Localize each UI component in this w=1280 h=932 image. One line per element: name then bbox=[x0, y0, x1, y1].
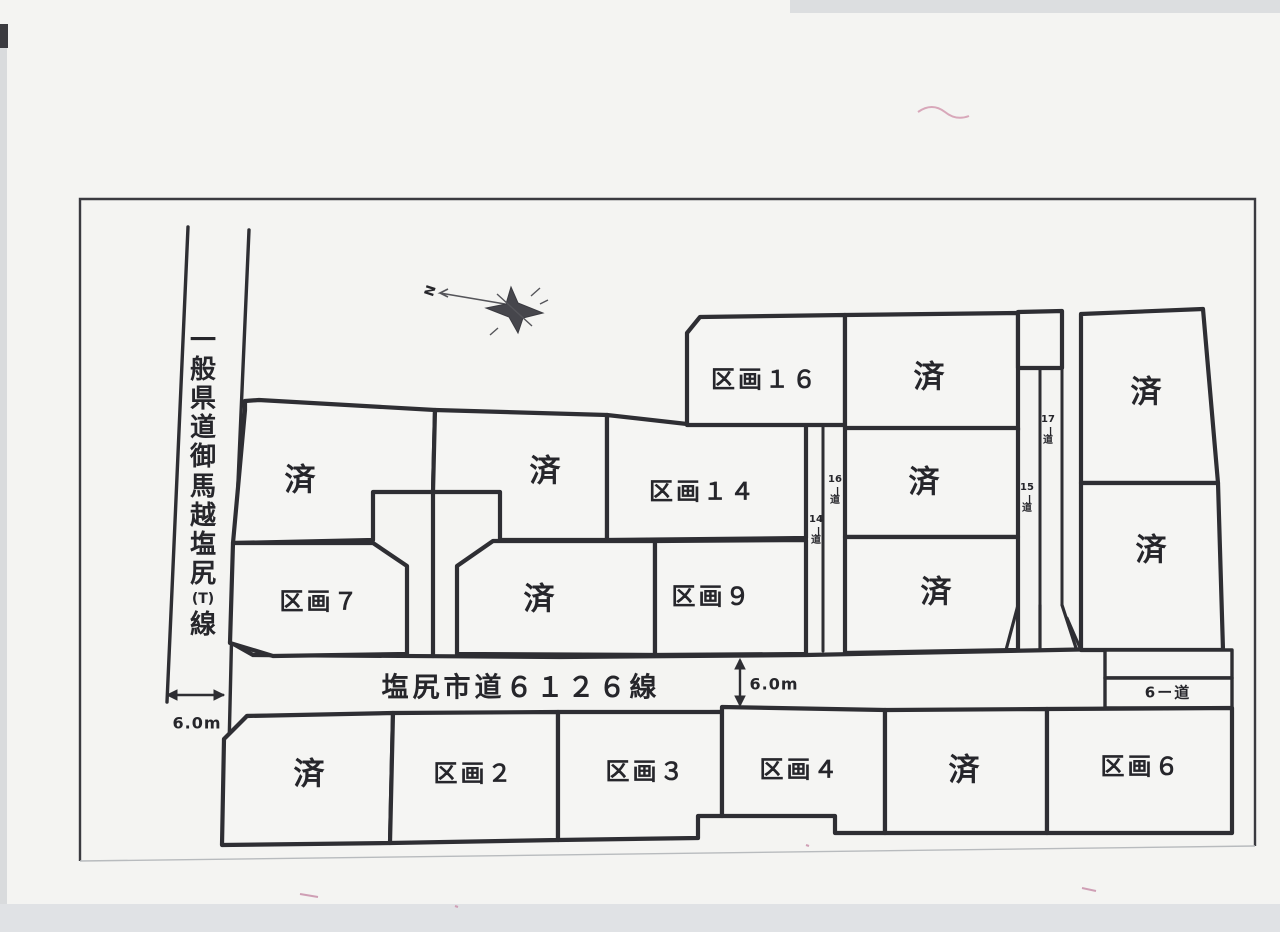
sold-stamp: 済 bbox=[530, 446, 561, 491]
sold-stamp: 済 bbox=[921, 567, 952, 612]
city-road-label: 塩尻市道６１２６線 bbox=[382, 666, 661, 705]
lot-label-9: 区画９ bbox=[672, 577, 753, 612]
pref-road-width-label: 6.0m bbox=[172, 714, 221, 733]
lane-label-14: 14ー道 bbox=[809, 515, 823, 547]
sold-stamp: 済 bbox=[1136, 525, 1167, 570]
sold-stamp: 済 bbox=[285, 455, 316, 500]
lot-label-16: 区画１６ bbox=[711, 360, 819, 395]
lot-label-14: 区画１４ bbox=[649, 472, 757, 507]
north-label: N bbox=[422, 284, 440, 299]
lot-label-3: 区画３ bbox=[606, 752, 687, 787]
sold-stamp: 済 bbox=[294, 749, 325, 794]
sold-stamp: 済 bbox=[949, 745, 980, 790]
prefectural-road-label: 一般県道御馬越塩尻(T)線 bbox=[190, 327, 216, 640]
sold-stamp: 済 bbox=[1131, 367, 1162, 412]
lane-label-17: 17ー道 bbox=[1041, 415, 1055, 447]
sold-stamp: 済 bbox=[524, 574, 555, 619]
scanned-lot-map: 一般県道御馬越塩尻(T)線 6.0m N 塩尻市道６１２６線 6.0m 区画１６… bbox=[0, 0, 1280, 932]
lot-label-6: 区画６ bbox=[1101, 747, 1182, 782]
labels-overlay: 一般県道御馬越塩尻(T)線 6.0m N 塩尻市道６１２６線 6.0m 区画１６… bbox=[0, 0, 1280, 932]
lot-label-2: 区画２ bbox=[434, 754, 515, 789]
lane-label-16: 16ー道 bbox=[828, 475, 842, 507]
sold-stamp: 済 bbox=[909, 457, 940, 502]
sold-stamp: 済 bbox=[914, 352, 945, 397]
lane-label-6: 6ー道 bbox=[1145, 682, 1191, 703]
lot-label-7: 区画７ bbox=[280, 582, 361, 617]
lane-label-15: 15ー道 bbox=[1020, 483, 1034, 515]
city-road-width-label: 6.0m bbox=[749, 675, 798, 694]
lot-label-4: 区画４ bbox=[760, 750, 841, 785]
